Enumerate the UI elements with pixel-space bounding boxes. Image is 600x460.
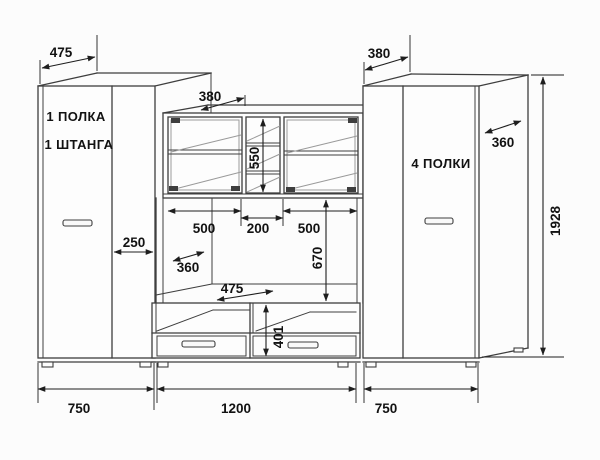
drawing-canvas: 1 ПОЛКА 1 ШТАНГА 4 ПОЛКИ 475 250 750 380… — [0, 0, 600, 460]
dim-label-base-depth: 475 — [221, 281, 244, 296]
dim-label-total-height: 1928 — [548, 205, 563, 236]
dim-label-center-top-depth: 380 — [199, 89, 222, 104]
dim-label-niche-height: 670 — [310, 247, 325, 270]
right-wardrobe-foot — [366, 362, 376, 367]
left-wardrobe-foot — [42, 362, 53, 367]
dim-label-right-width: 750 — [375, 401, 398, 416]
left-wardrobe-door-handle — [63, 220, 92, 226]
dim-label-right-opening: 500 — [298, 221, 321, 236]
dim-label-right-depth: 380 — [368, 46, 391, 61]
dim-right-side-depth — [485, 121, 521, 133]
left-wardrobe-feature-2: 1 ШТАНГА — [45, 137, 114, 152]
center-unit-foot — [158, 362, 168, 367]
hinge-icon — [286, 187, 295, 192]
right-wardrobe — [363, 74, 528, 367]
dim-label-left-depth: 475 — [50, 45, 73, 60]
furniture-dimension-drawing: 1 ПОЛКА 1 ШТАНГА 4 ПОЛКИ 475 250 750 380… — [0, 0, 600, 460]
dim-label-base-height: 401 — [271, 325, 286, 348]
hinge-icon — [231, 186, 240, 191]
dim-label-right-side-depth: 360 — [492, 135, 515, 150]
center-unit — [152, 105, 363, 367]
left-wardrobe-foot — [140, 362, 151, 367]
left-wardrobe-feature-1: 1 ПОЛКА — [46, 109, 105, 124]
right-wardrobe-foot — [466, 362, 476, 367]
hinge-icon — [169, 186, 178, 191]
right-drawer-handle — [288, 342, 318, 348]
right-wardrobe-feature: 4 ПОЛКИ — [411, 156, 470, 171]
dim-label-left-opening: 500 — [193, 221, 216, 236]
dim-label-middle-opening: 200 — [247, 221, 270, 236]
hinge-icon — [171, 118, 180, 123]
hinge-icon — [347, 187, 356, 192]
dim-label-hutch-height: 550 — [247, 147, 262, 170]
dim-label-left-section: 250 — [123, 235, 146, 250]
right-wardrobe-foot — [514, 348, 523, 352]
right-wardrobe-door-handle — [425, 218, 453, 224]
left-drawer-handle — [182, 341, 215, 347]
center-unit-foot — [338, 362, 348, 367]
dim-label-left-width: 750 — [68, 401, 91, 416]
hinge-icon — [348, 118, 357, 123]
dim-label-niche-depth: 360 — [177, 260, 200, 275]
dim-label-center-width: 1200 — [221, 401, 251, 416]
